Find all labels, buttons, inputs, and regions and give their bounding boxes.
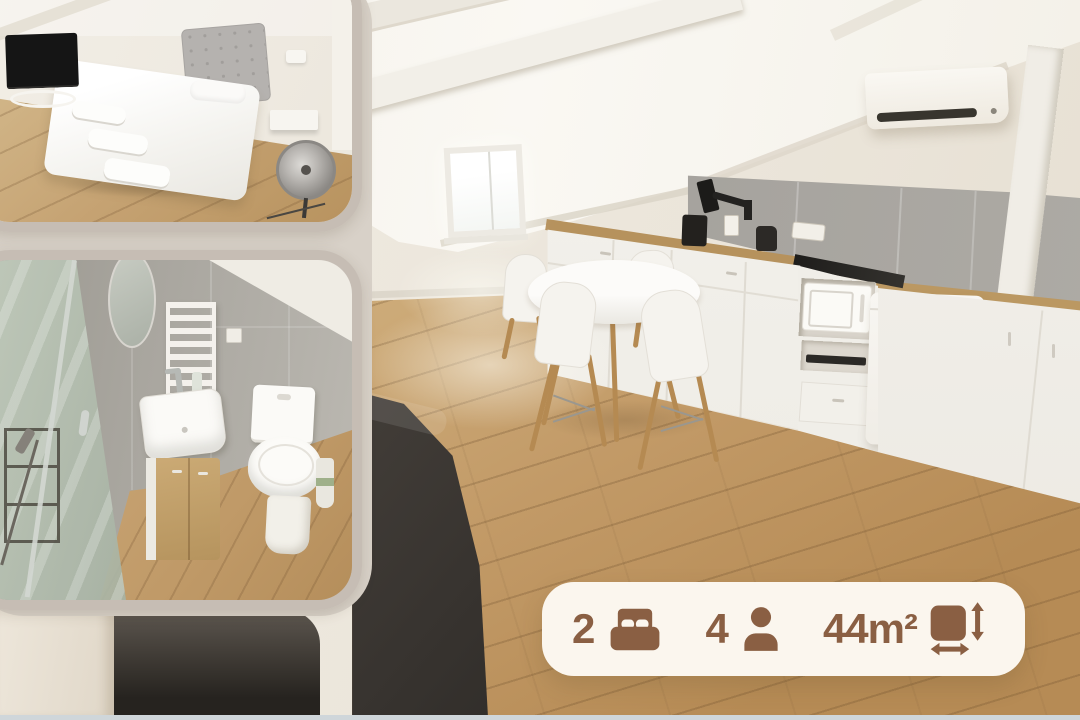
- bedroom-wall-edge: [332, 0, 352, 150]
- wall-corner: [0, 598, 114, 720]
- bedrooms-count: 2: [572, 608, 594, 650]
- person-icon: [740, 606, 782, 652]
- drawer: [799, 381, 876, 426]
- power-socket: [724, 215, 739, 236]
- cabinet-handle: [1052, 344, 1055, 358]
- property-listing-card: 2 4 44m²: [0, 0, 1080, 720]
- bathroom-inset-photo: [0, 250, 362, 610]
- television: [5, 33, 79, 89]
- dining-chair: [533, 279, 599, 369]
- vanity-cabinet: [146, 458, 220, 560]
- microwave: [802, 282, 872, 333]
- stat-guests: 4: [705, 606, 781, 652]
- kettle: [756, 226, 777, 251]
- washbasin: [138, 387, 227, 461]
- area-icon: [929, 602, 991, 656]
- toilet-pedestal: [265, 495, 312, 555]
- coffee-machine: [681, 215, 707, 247]
- wall-lamp: [286, 50, 306, 63]
- table-shadow: [540, 400, 710, 440]
- guests-count: 4: [705, 608, 727, 650]
- tv-stand: [10, 90, 76, 108]
- sofa-armrest: [110, 610, 320, 720]
- toilet-brush: [316, 458, 334, 508]
- power-socket: [791, 221, 826, 241]
- cabinet-handle: [1008, 332, 1011, 346]
- attic-window: [444, 144, 527, 238]
- bottom-edge-strip: [0, 715, 1080, 720]
- stat-area: 44m²: [823, 602, 991, 656]
- area-value: 44m²: [823, 608, 917, 650]
- air-conditioner-unit: [865, 66, 1010, 129]
- floor-fan: [276, 140, 336, 200]
- round-mirror: [108, 252, 156, 348]
- cabinet-handle: [172, 470, 182, 473]
- towel-radiator: [166, 302, 216, 402]
- bed-icon: [606, 606, 664, 653]
- cabinet-handle: [198, 472, 208, 475]
- tv-wall-mount-base: [744, 200, 752, 220]
- property-stats-badge: 2 4 44m²: [542, 582, 1025, 676]
- stat-bedrooms: 2: [572, 606, 664, 653]
- bedside-shelf: [270, 110, 318, 130]
- power-socket: [226, 328, 242, 343]
- bedroom-inset-photo: [0, 0, 362, 232]
